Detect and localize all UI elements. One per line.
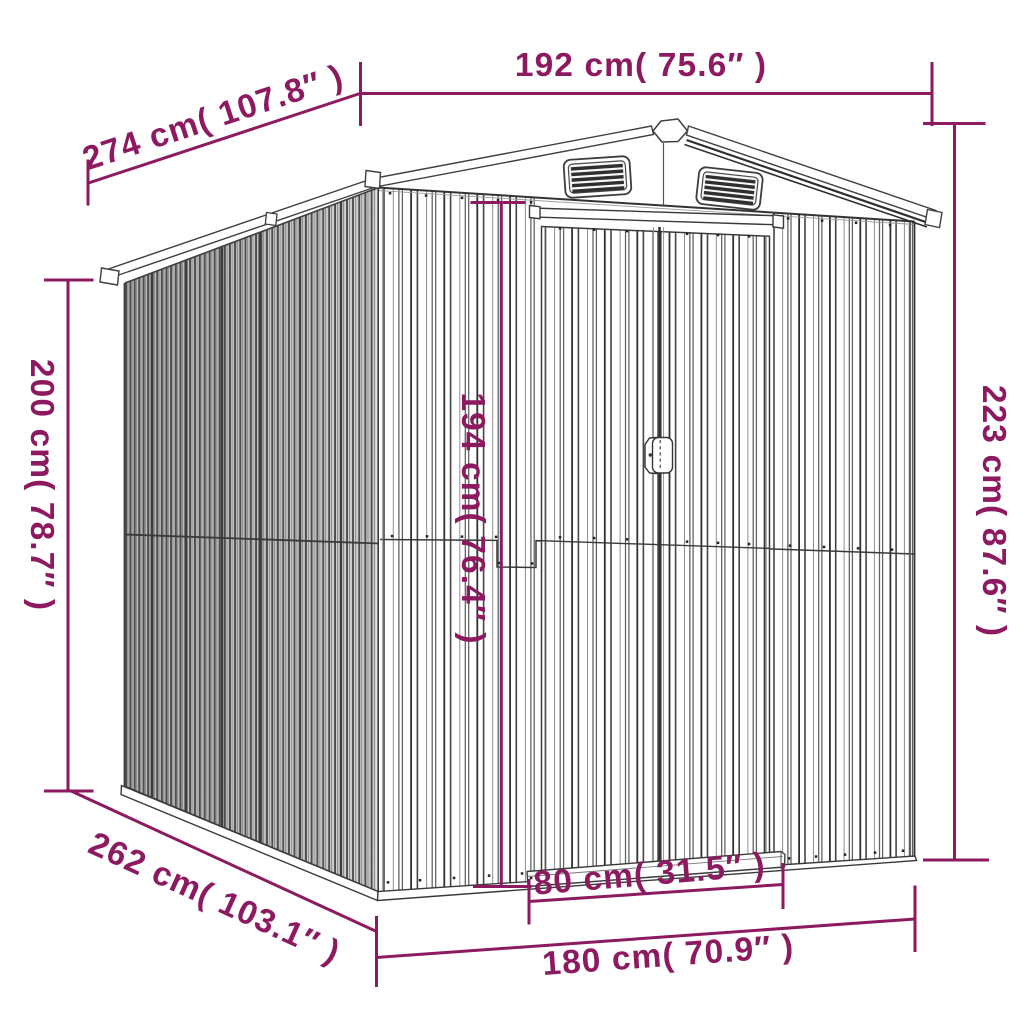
svg-text:194 cm( 76.4″ ): 194 cm( 76.4″ ) [454, 392, 491, 644]
svg-text:192 cm( 75.6″ ): 192 cm( 75.6″ ) [515, 47, 767, 84]
svg-text:223 cm( 87.6″ ): 223 cm( 87.6″ ) [975, 385, 1012, 637]
svg-text:200 cm( 78.7″ ): 200 cm( 78.7″ ) [23, 359, 60, 611]
